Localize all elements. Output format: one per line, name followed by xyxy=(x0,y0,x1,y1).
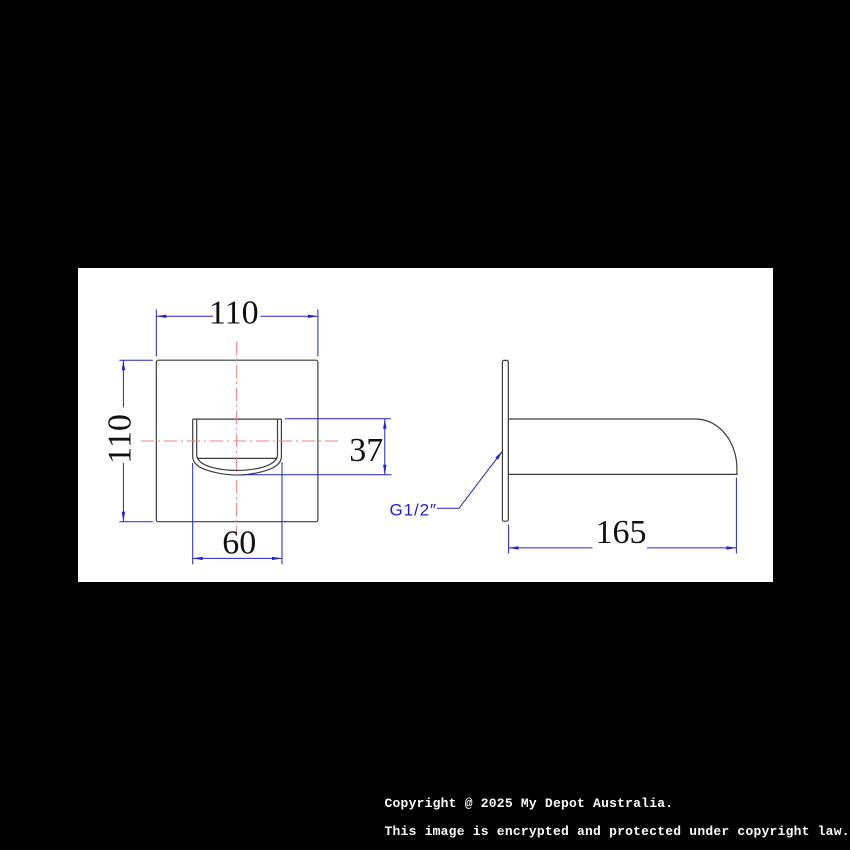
svg-text:165: 165 xyxy=(596,514,647,551)
svg-text:Copyright @ 2025 My Depot Aust: Copyright @ 2025 My Depot Australia. xyxy=(385,796,674,811)
svg-text:G1/2″: G1/2″ xyxy=(390,501,437,520)
svg-text:37: 37 xyxy=(349,432,383,469)
svg-text:This image is encrypted and pr: This image is encrypted and protected un… xyxy=(385,824,850,839)
svg-text:60: 60 xyxy=(222,525,256,562)
svg-text:110: 110 xyxy=(101,414,138,464)
svg-text:110: 110 xyxy=(209,295,259,332)
